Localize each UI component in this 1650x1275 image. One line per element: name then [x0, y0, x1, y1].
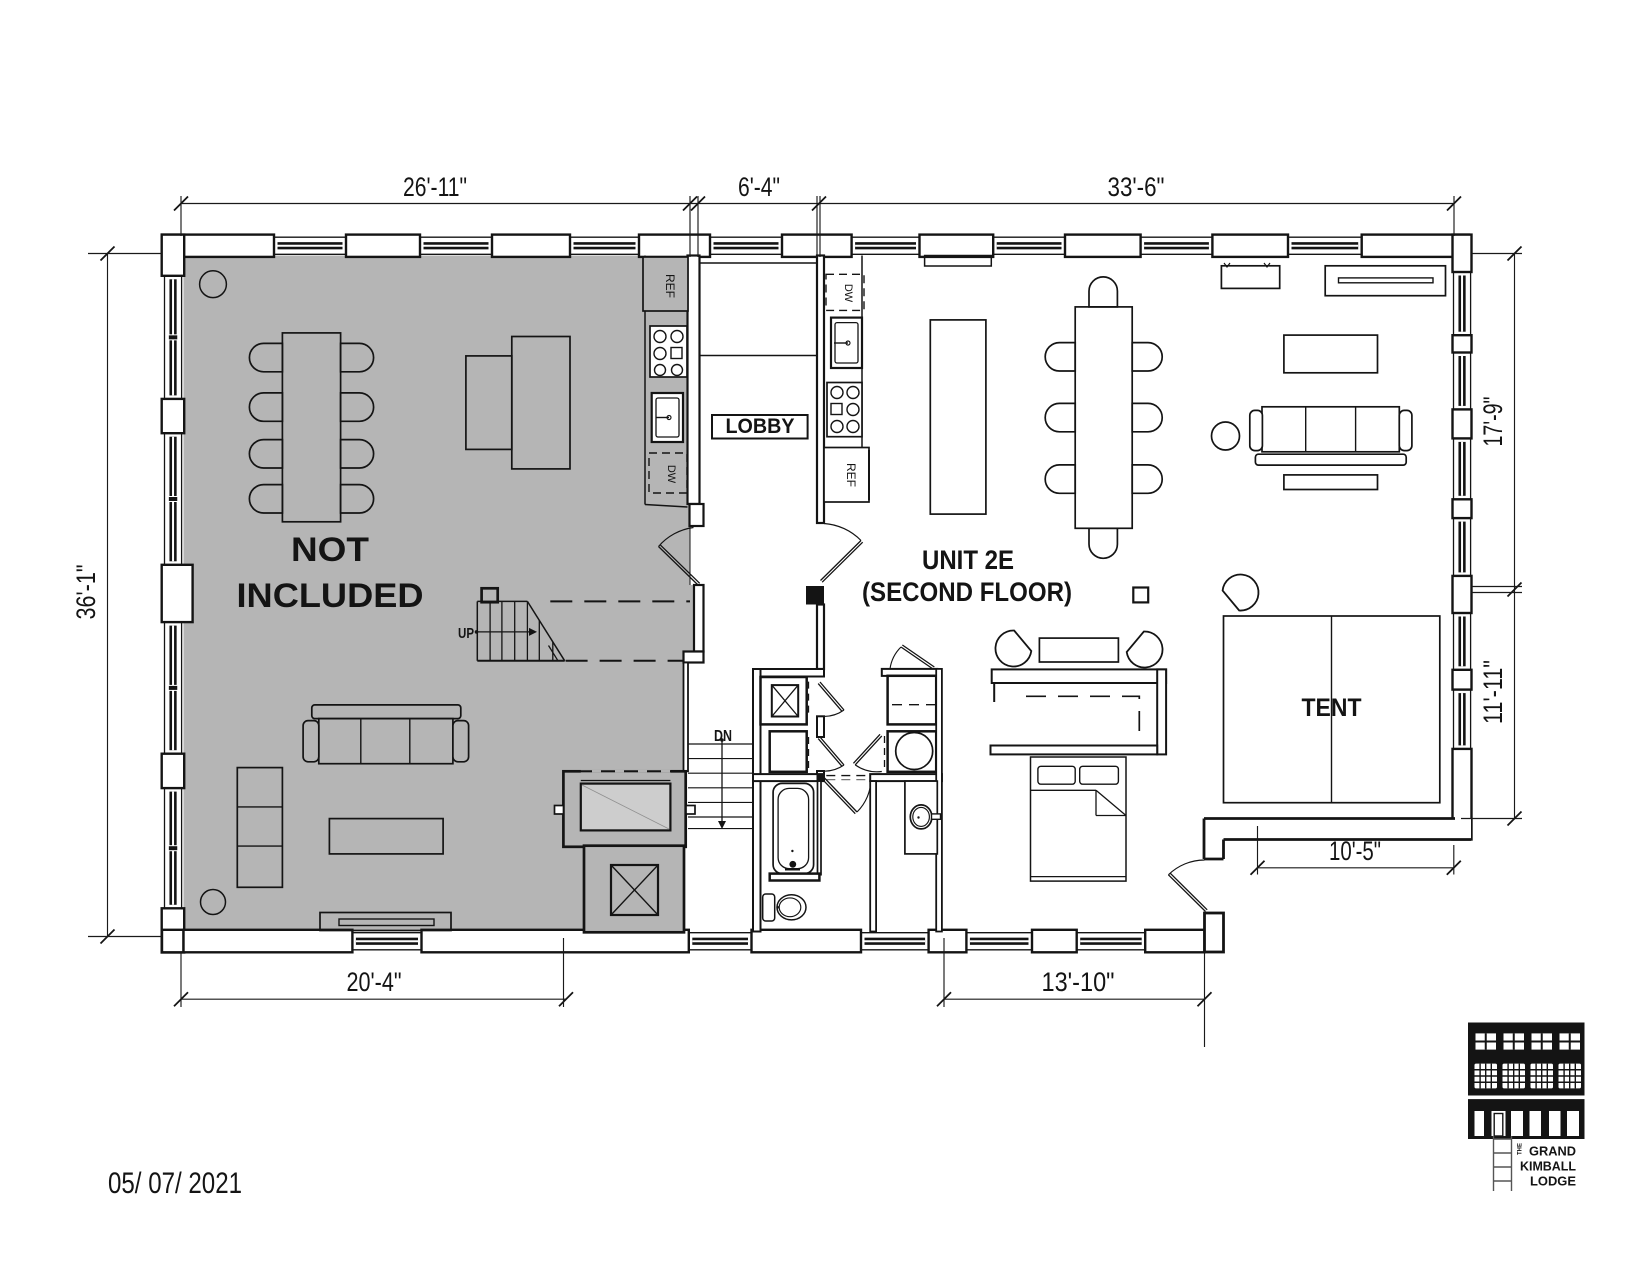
svg-text:KIMBALL: KIMBALL — [1520, 1159, 1576, 1174]
svg-text:26'-11": 26'-11" — [403, 172, 467, 202]
svg-text:13'-10": 13'-10" — [1042, 967, 1115, 997]
svg-text:36'-1": 36'-1" — [71, 565, 101, 620]
svg-text:10'-5": 10'-5" — [1329, 836, 1381, 866]
svg-text:11'-11": 11'-11" — [1478, 660, 1508, 724]
svg-text:LODGE: LODGE — [1530, 1174, 1576, 1189]
svg-text:UNIT 2E: UNIT 2E — [922, 545, 1014, 575]
svg-text:REF: REF — [844, 463, 858, 487]
svg-text:DN: DN — [714, 728, 732, 745]
svg-text:05/ 07/ 2021: 05/ 07/ 2021 — [108, 1167, 242, 1200]
svg-text:(SECOND FLOOR): (SECOND FLOOR) — [862, 577, 1072, 607]
svg-text:6'-4": 6'-4" — [738, 172, 780, 202]
svg-text:TENT: TENT — [1302, 694, 1362, 722]
svg-text:17'-9": 17'-9" — [1478, 397, 1508, 447]
svg-text:DW: DW — [842, 284, 854, 303]
svg-text:UP: UP — [458, 625, 474, 642]
svg-text:NOT: NOT — [291, 531, 369, 569]
svg-text:REF: REF — [663, 274, 677, 298]
svg-text:DW: DW — [665, 465, 677, 484]
svg-text:GRAND: GRAND — [1529, 1144, 1576, 1159]
svg-text:20'-4": 20'-4" — [347, 967, 402, 997]
svg-text:THE: THE — [1518, 1143, 1524, 1155]
svg-text:LOBBY: LOBBY — [726, 415, 795, 438]
svg-text:33'-6": 33'-6" — [1108, 172, 1165, 202]
svg-text:INCLUDED: INCLUDED — [237, 577, 424, 615]
